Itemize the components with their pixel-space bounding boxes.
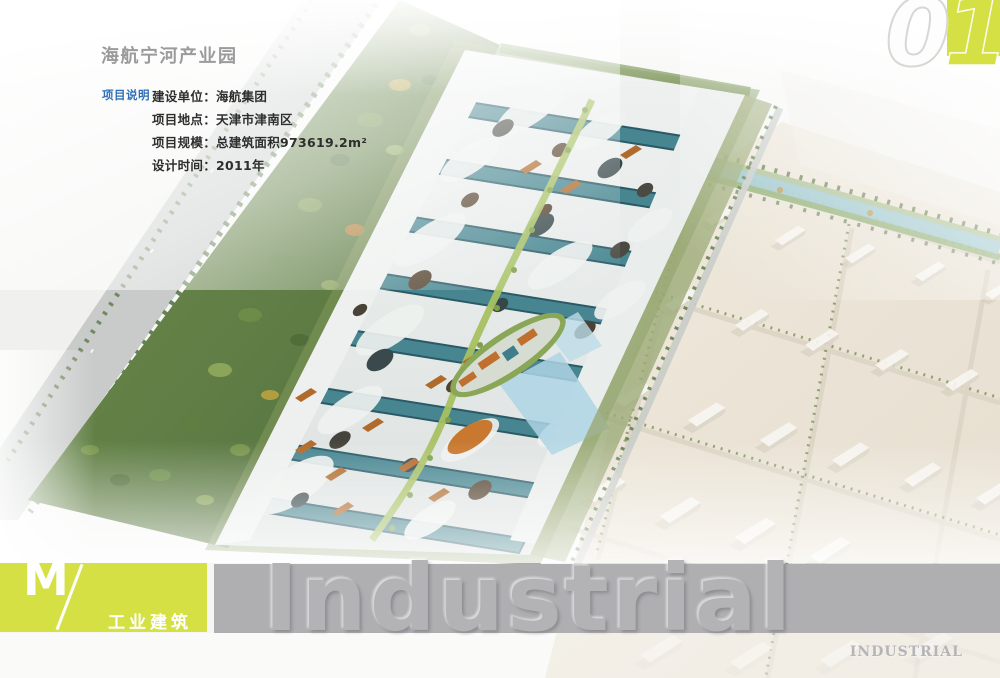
info-line-scale: 项目规模：总建筑面积973619.2m² xyxy=(152,131,367,154)
page-number: 01 xyxy=(885,0,1000,81)
page-number-digit-0: 0 xyxy=(885,0,943,88)
category-label: 工业建筑 xyxy=(108,608,192,633)
logo-letter: M xyxy=(23,556,69,602)
info-line-location: 项目地点：天津市津南区 xyxy=(152,108,367,131)
footer-watermark: Industrial xyxy=(264,553,794,645)
page-number-digit-1: 1 xyxy=(944,0,1000,88)
project-info-lines: 建设单位：海航集团 项目地点：天津市津南区 项目规模：总建筑面积973619.2… xyxy=(152,85,367,177)
corner-label: INDUSTRIAL xyxy=(850,644,963,660)
info-line-year: 设计时间：2011年 xyxy=(152,154,367,177)
page-container: 海航宁河产业园 项目说明 建设单位：海航集团 项目地点：天津市津南区 项目规模：… xyxy=(0,0,1000,678)
project-info-label: 项目说明 xyxy=(102,87,150,103)
page-title: 海航宁河产业园 xyxy=(101,42,238,68)
info-line-owner: 建设单位：海航集团 xyxy=(152,85,367,108)
